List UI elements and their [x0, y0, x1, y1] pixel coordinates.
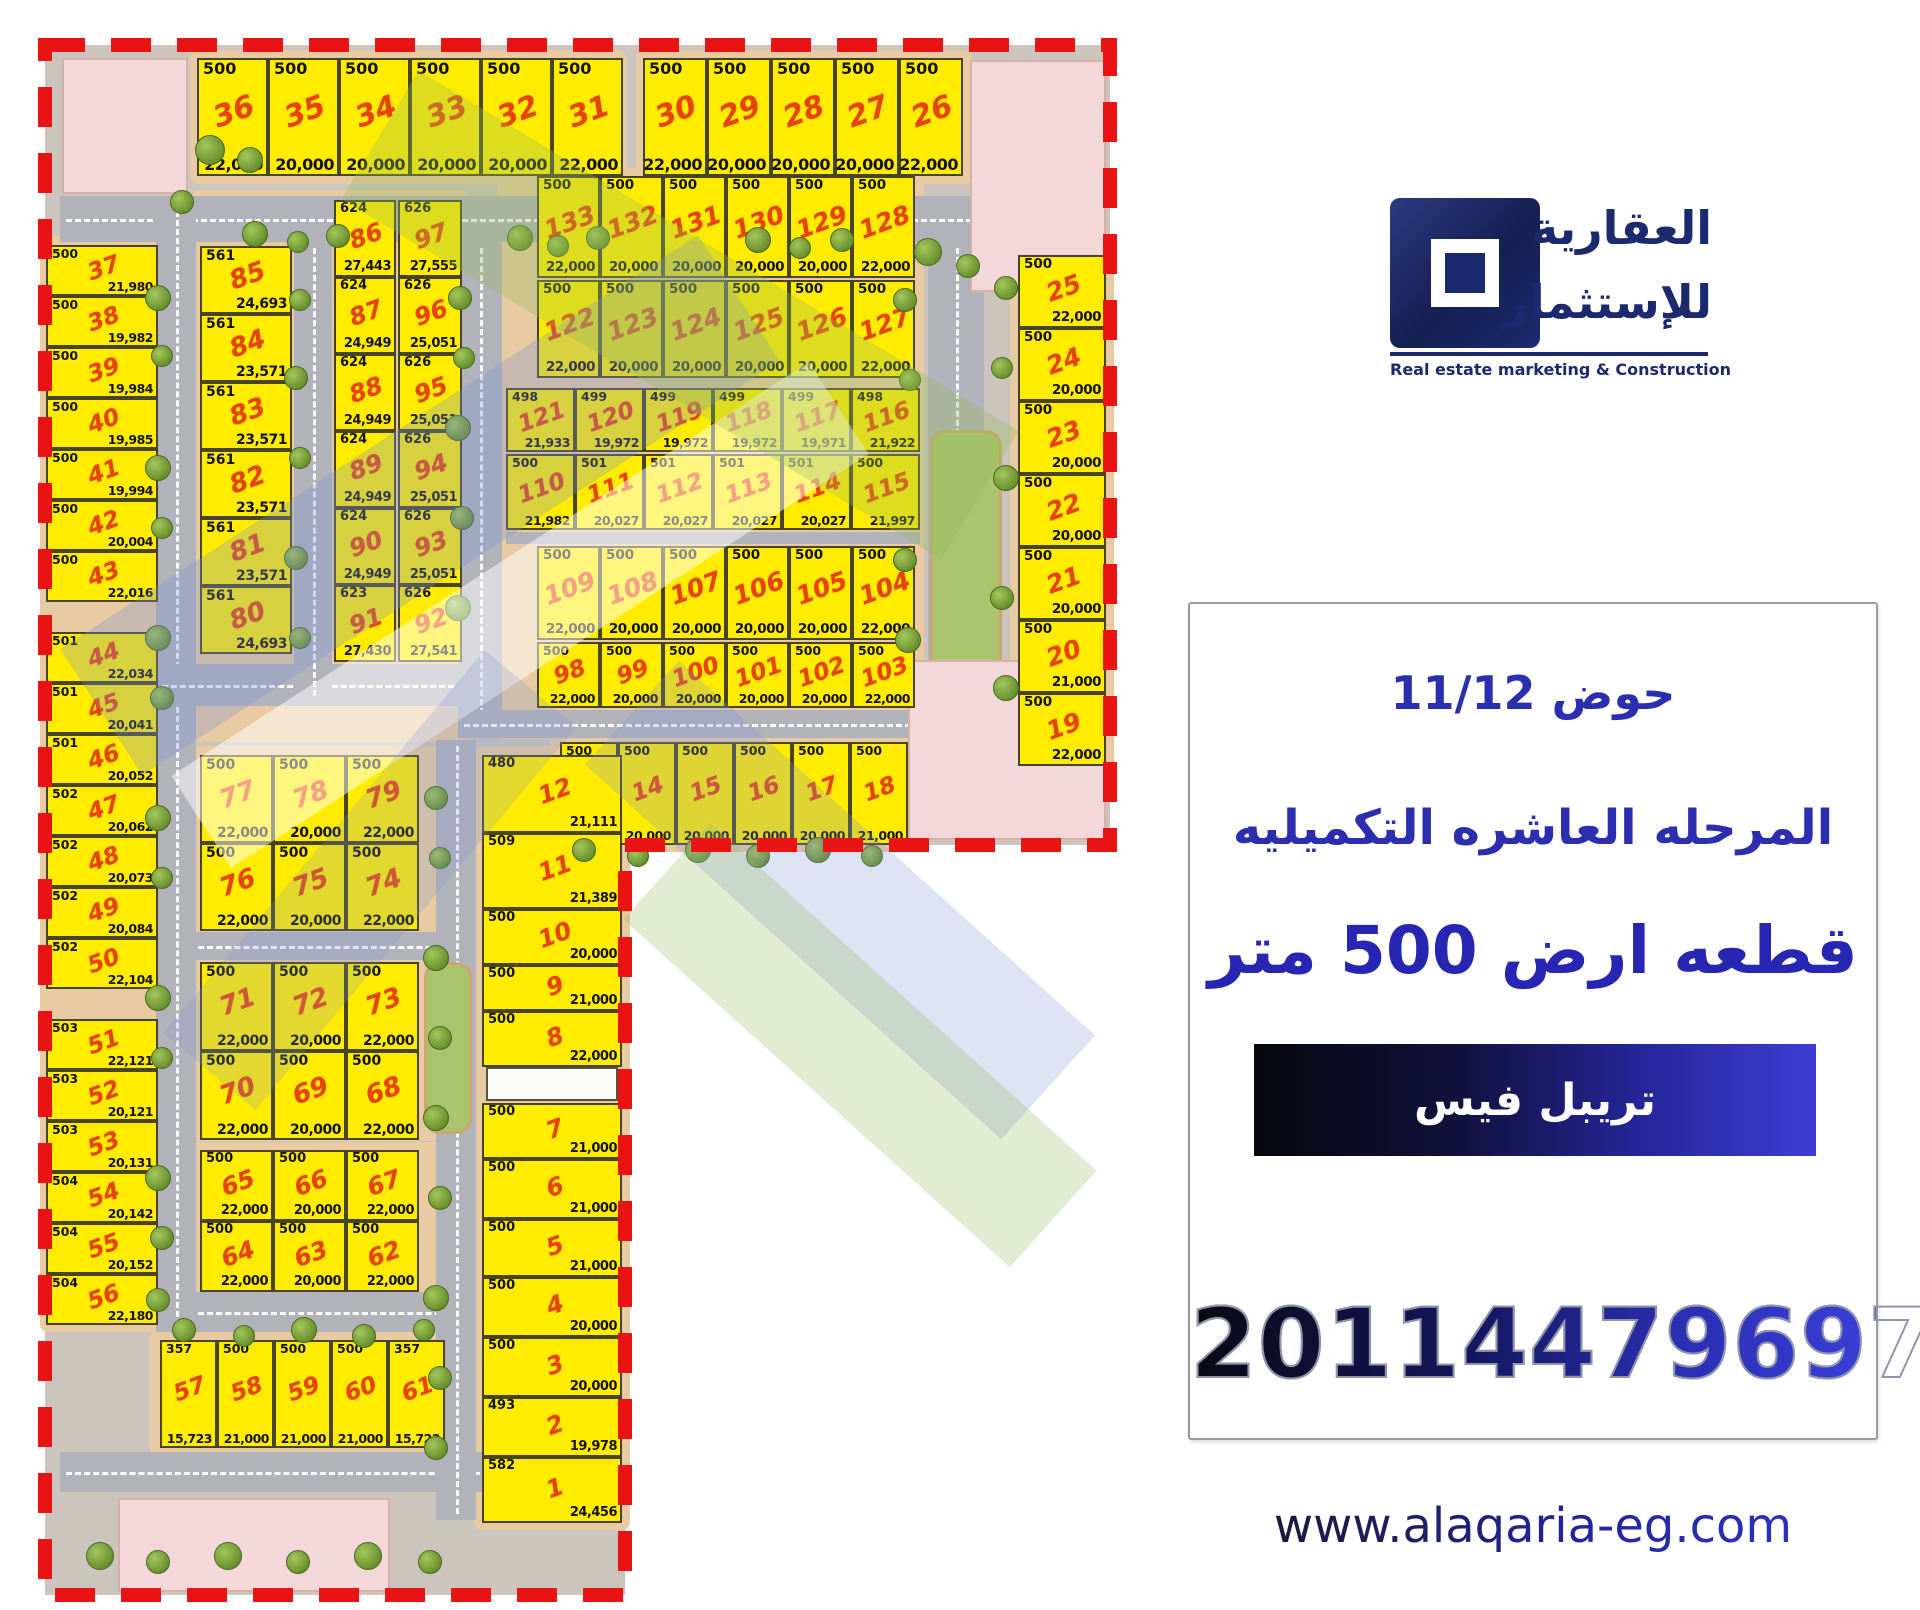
plot-number: 98: [551, 656, 589, 689]
plot-price: 22,000: [550, 692, 595, 706]
offer-subheading: المرحله العاشره التكميليه: [1190, 800, 1876, 856]
plot-number: 58: [227, 1373, 265, 1406]
plot-117: 49911719,971: [782, 388, 851, 452]
plot-area: 500: [795, 178, 823, 194]
plot-area: 500: [606, 282, 634, 298]
plot-number: 94: [411, 450, 451, 484]
plot-63: 5006320,000: [273, 1221, 346, 1292]
plot-43: 5004322,016: [46, 551, 158, 602]
plot-52: 5035220,121: [46, 1070, 158, 1121]
plot-number: 34: [351, 91, 400, 133]
plot-area: 500: [488, 1221, 515, 1236]
plot-number: 101: [732, 653, 785, 691]
watermark-shape: [623, 823, 1096, 1268]
plot-area: 500: [1024, 330, 1052, 346]
plot-number: 86: [346, 219, 386, 253]
plot-price: 24,949: [344, 568, 391, 583]
plot-number: 103: [858, 653, 911, 691]
plot-46: 5014620,052: [46, 734, 158, 785]
vacant-area: [118, 1498, 390, 1592]
tree: [423, 1285, 449, 1311]
tree: [150, 1226, 174, 1250]
tree: [195, 135, 225, 165]
plot-125: 50012520,000: [726, 280, 789, 378]
plot-area: 500: [858, 178, 886, 194]
plot-80: 5618024,693: [200, 586, 292, 654]
plot-price: 20,041: [108, 718, 153, 732]
plot-price: 27,443: [344, 260, 391, 275]
tree: [151, 345, 173, 367]
road: [458, 242, 502, 738]
plot-price: 22,000: [363, 1122, 414, 1138]
plot-number: 71: [217, 985, 260, 1022]
plot-6: 500621,000: [482, 1159, 622, 1219]
plot-90: 6249024,949: [334, 508, 396, 585]
plot-price: 19,982: [108, 331, 153, 345]
plot-23: 5002320,000: [1018, 401, 1106, 474]
plot-area: 500: [52, 502, 78, 516]
plot-51: 5035122,121: [46, 1019, 158, 1070]
plot-47: 5024720,062: [46, 785, 158, 836]
plot-116: 49811621,922: [851, 388, 920, 452]
plot-number: 123: [604, 305, 662, 346]
tree: [627, 845, 649, 867]
plot-area: 500: [206, 964, 235, 980]
tree: [899, 369, 921, 391]
plot-number: 4: [543, 1291, 567, 1319]
plot-price: 22,000: [546, 260, 595, 276]
tree: [237, 147, 263, 173]
plot-41: 5004119,994: [46, 449, 158, 500]
plot-area: 502: [52, 838, 78, 852]
plot-area: 624: [340, 202, 367, 217]
phone-number: 201144796971: [1190, 1288, 1876, 1400]
plot-area: 500: [279, 1053, 308, 1069]
tree: [151, 1047, 173, 1069]
plot-number: 5: [543, 1232, 567, 1260]
tree: [805, 837, 831, 863]
tree: [354, 1542, 382, 1570]
plot-105: 50010520,000: [789, 546, 852, 640]
plot-48: 5024820,073: [46, 836, 158, 887]
tree: [146, 1288, 170, 1312]
tree: [914, 238, 942, 266]
plot-number: 128: [856, 202, 914, 243]
plot-area: 561: [206, 452, 235, 468]
plot-area: 561: [206, 520, 235, 536]
plot-price: 20,000: [609, 622, 658, 638]
tree: [685, 837, 711, 863]
plot-price: 27,555: [410, 260, 457, 275]
tree: [289, 627, 311, 649]
tree: [289, 289, 311, 311]
plot-area: 500: [274, 60, 307, 78]
plot-price: 20,000: [798, 260, 847, 276]
plot-number: 125: [730, 305, 788, 346]
plot-area: 498: [512, 390, 538, 404]
plot-area: 500: [1024, 549, 1052, 565]
plot-number: 3: [543, 1351, 567, 1379]
plot-area: 501: [650, 456, 676, 470]
plot-price: 21,000: [570, 1260, 617, 1275]
plot-number: 82: [226, 463, 269, 500]
plot-area: 502: [52, 889, 78, 903]
plot-area: 500: [1024, 622, 1052, 638]
plot-66: 5006620,000: [273, 1150, 346, 1221]
plot-number: 9: [543, 972, 567, 1000]
plot-area: 500: [606, 548, 634, 564]
tree: [242, 221, 268, 247]
plot-114: 50111420,027: [782, 454, 851, 530]
plot-number: 115: [860, 470, 913, 508]
plot-area: 493: [488, 1399, 515, 1414]
plot-area: 500: [352, 845, 381, 861]
plot-121: 49812121,933: [506, 388, 575, 452]
plot-area: 561: [206, 316, 235, 332]
plot-number: 26: [908, 91, 957, 133]
tree: [991, 357, 1013, 379]
plot-price: 21,000: [570, 1202, 617, 1217]
plot-123: 50012320,000: [600, 280, 663, 378]
plot-number: 14: [629, 773, 667, 806]
plot-number: 6: [543, 1173, 567, 1201]
payment-banner-label: تريبل فيس: [1414, 1075, 1656, 1126]
plot-price: 21,000: [1052, 675, 1101, 691]
plot-area: 501: [788, 456, 814, 470]
plot-area: 500: [795, 644, 821, 658]
plot-number: 112: [653, 470, 706, 508]
plot-area: 500: [1024, 695, 1052, 711]
tree: [146, 1550, 170, 1574]
tree: [423, 1105, 449, 1131]
plot-68: 5006822,000: [346, 1051, 419, 1140]
plot-price: 19,972: [732, 436, 777, 450]
plot-8: 500822,000: [482, 1011, 622, 1067]
plot-14: 5001420,000: [618, 742, 676, 845]
plot-number: 131: [667, 202, 725, 243]
plot-87: 6248724,949: [334, 277, 396, 354]
plot-price: 20,000: [294, 1204, 341, 1219]
plot-number: 100: [669, 653, 722, 691]
tree: [428, 1186, 452, 1210]
plot-area: 480: [488, 757, 515, 772]
plot-number: 90: [346, 527, 386, 561]
plot-price: 20,000: [672, 260, 721, 276]
plot-area: 503: [52, 1021, 78, 1035]
tree: [453, 347, 475, 369]
plot-30: 5003022,000: [643, 58, 707, 176]
plot-16: 5001620,000: [734, 742, 792, 845]
plot-area: 500: [669, 178, 697, 194]
plot-area: 501: [52, 685, 78, 699]
plot-number: 85: [226, 259, 269, 296]
plot-56: 5045622,180: [46, 1274, 158, 1325]
plot-price: 24,949: [344, 491, 391, 506]
plot-area: 561: [206, 248, 235, 264]
plot-57: 3575715,723: [160, 1340, 217, 1448]
plot-number: 111: [584, 470, 637, 508]
plot-85: 5618524,693: [200, 246, 292, 314]
tree: [233, 1325, 255, 1347]
plot-area: 500: [52, 247, 78, 261]
tree: [326, 224, 350, 248]
plot-area: 500: [1024, 257, 1052, 273]
plot-area: 500: [858, 548, 886, 564]
plot-71: 5007122,000: [200, 962, 273, 1051]
plot-area: 501: [581, 456, 607, 470]
plot-price: 19,971: [801, 436, 846, 450]
tree: [428, 1366, 452, 1390]
plot-price: 22,000: [643, 156, 702, 174]
plot-area: 500: [352, 964, 381, 980]
plot-price: 20,000: [798, 622, 847, 638]
plot-102: 50010220,000: [789, 642, 852, 708]
plot-price: 20,004: [108, 535, 153, 549]
plot-89: 6248924,949: [334, 431, 396, 508]
plot-price: 23,571: [236, 432, 287, 448]
plot-price: 21,933: [525, 436, 570, 450]
plot-price: 22,000: [363, 825, 414, 841]
tree: [445, 595, 471, 621]
plot-area: 500: [777, 60, 810, 78]
plot-price: 20,000: [346, 156, 405, 174]
tree: [994, 276, 1018, 300]
plot-price: 22,000: [861, 260, 910, 276]
plot-price: 22,000: [363, 1033, 414, 1049]
plot-price: 20,027: [732, 514, 777, 528]
plot-32: 5003220,000: [481, 58, 552, 176]
road: [458, 710, 926, 738]
plot-price: 23,571: [236, 364, 287, 380]
plot-area: 561: [206, 588, 235, 604]
plot-113: 50111320,027: [713, 454, 782, 530]
plot-61: 3576115,723: [388, 1340, 445, 1448]
plot-area: 503: [52, 1072, 78, 1086]
plot-number: 73: [363, 985, 406, 1022]
plot-number: 75: [290, 865, 333, 902]
tree: [990, 586, 1014, 610]
plot-40: 5004019,985: [46, 398, 158, 449]
plot-area: 357: [166, 1342, 192, 1356]
tree: [861, 845, 883, 867]
plot-124: 50012420,000: [663, 280, 726, 378]
plot-price: 22,000: [546, 622, 595, 638]
plot-price: 20,000: [1052, 456, 1101, 472]
plot-number: 110: [515, 470, 568, 508]
plot-price: 20,000: [739, 692, 784, 706]
plot-area: 500: [488, 1105, 515, 1120]
plot-price: 20,000: [1052, 602, 1101, 618]
plot-area: 499: [719, 390, 745, 404]
plot-number: 79: [363, 777, 406, 814]
payment-banner: تريبل فيس: [1254, 1044, 1816, 1156]
plot-price: 20,000: [835, 156, 894, 174]
plot-area: 500: [856, 744, 882, 758]
plot-area: 500: [488, 1161, 515, 1176]
plot-price: 22,000: [865, 692, 910, 706]
plot-119: 49911919,972: [644, 388, 713, 452]
plot-area: 500: [606, 644, 632, 658]
plot-number: 59: [284, 1373, 322, 1406]
plot-area: 500: [488, 967, 515, 982]
logo-arabic-name: العقارية للإستثمار: [1552, 192, 1712, 339]
plot-55: 5045520,152: [46, 1223, 158, 1274]
plot-price: 22,000: [570, 1050, 617, 1065]
plot-area: 500: [487, 60, 520, 78]
plot-price: 20,000: [672, 360, 721, 376]
tree: [445, 415, 471, 441]
plot-price: 20,000: [570, 948, 617, 963]
plot-number: 16: [745, 773, 783, 806]
plot-price: 22,000: [217, 825, 268, 841]
tree: [145, 625, 171, 651]
plot-number: 35: [280, 91, 329, 133]
tree: [151, 517, 173, 539]
plot-26: 5002622,000: [899, 58, 963, 176]
plot-62: 5006222,000: [346, 1221, 419, 1292]
plot-75: 5007520,000: [273, 843, 346, 931]
plot-price: 21,389: [570, 892, 617, 907]
plot-number: 64: [218, 1237, 258, 1271]
plot-price: 20,121: [108, 1105, 153, 1119]
plot-number: 74: [363, 865, 406, 902]
plot-price: 22,000: [363, 913, 414, 929]
plot-12: 4801221,111: [482, 755, 622, 833]
plot-area: 509: [488, 835, 515, 850]
tree: [746, 844, 770, 868]
plot-15: 5001520,000: [676, 742, 734, 845]
info-panel: العقارية للإستثمار Real estate marketing…: [1130, 0, 1920, 1610]
plot-number: 132: [604, 202, 662, 243]
plot-88: 6248824,949: [334, 354, 396, 431]
plot-area: 500: [488, 1013, 515, 1028]
plot-area: 500: [682, 744, 708, 758]
plot-price: 20,131: [108, 1156, 153, 1170]
plot-area: 500: [52, 349, 78, 363]
tree: [893, 288, 917, 312]
plot-price: 22,034: [108, 667, 153, 681]
plot-area: 500: [1024, 403, 1052, 419]
plot-price: 22,180: [108, 1309, 153, 1323]
plot-area: 500: [732, 644, 758, 658]
plot-number: 99: [614, 656, 652, 689]
plot-number: 124: [667, 305, 725, 346]
plot-price: 19,994: [108, 484, 153, 498]
plot-price: 15,723: [167, 1432, 212, 1446]
plot-122: 50012222,000: [537, 280, 600, 378]
plot-number: 89: [346, 450, 386, 484]
plot-area: 500: [52, 400, 78, 414]
plot-37: 5003721,980: [46, 245, 158, 296]
plot-number: 67: [364, 1166, 404, 1200]
plot-number: 28: [780, 91, 829, 133]
plot-77: 5007722,000: [200, 755, 273, 843]
flyer: 5003622,0005003520,0005003420,0005003320…: [0, 0, 1920, 1610]
plot-number: 106: [730, 569, 788, 610]
plot-29: 5002920,000: [707, 58, 771, 176]
plot-27: 5002720,000: [835, 58, 899, 176]
plot-area: 500: [543, 644, 569, 658]
plot-number: 77: [217, 777, 260, 814]
tree: [145, 985, 171, 1011]
plot-number: 62: [364, 1237, 404, 1271]
plot-price: 19,972: [594, 436, 639, 450]
plot-area: 500: [1024, 476, 1052, 492]
plot-number: 114: [791, 470, 844, 508]
plot-price: 20,000: [742, 829, 787, 843]
tree: [413, 1319, 435, 1341]
plot-area: 500: [858, 282, 886, 298]
plot-number: 78: [290, 777, 333, 814]
plot-area: 500: [624, 744, 650, 758]
plot-area: 500: [52, 298, 78, 312]
plot-39: 5003919,984: [46, 347, 158, 398]
tree: [284, 546, 308, 570]
plot-number: 8: [543, 1023, 567, 1051]
plot-number: 63: [291, 1237, 331, 1271]
plot-number: 66: [291, 1166, 331, 1200]
plot-price: 20,000: [290, 825, 341, 841]
plot-54: 5045420,142: [46, 1172, 158, 1223]
plot-area: 501: [52, 634, 78, 648]
plot-number: 72: [290, 985, 333, 1022]
plot-74: 5007422,000: [346, 843, 419, 931]
plot-price: 22,121: [108, 1054, 153, 1068]
plot-area: 626: [404, 279, 431, 294]
plot-price: 20,000: [1052, 529, 1101, 545]
plot-76: 5007622,000: [200, 843, 273, 931]
offer-card: حوض 11/12 المرحله العاشره التكميليه قطعه…: [1188, 602, 1878, 1440]
plot-area: 500: [543, 178, 571, 194]
plot-area: 500: [352, 1152, 379, 1167]
plot-area: 503: [52, 1123, 78, 1137]
plot-number: 108: [604, 569, 662, 610]
plot-number: 21: [1043, 563, 1084, 598]
plot-number: 12: [535, 774, 575, 808]
plot-60: 5006021,000: [331, 1340, 388, 1448]
tree: [151, 867, 173, 889]
plot-58: 5005821,000: [217, 1340, 274, 1448]
plot-price: 20,000: [570, 1380, 617, 1395]
plot-area: 500: [345, 60, 378, 78]
plot-area: 500: [543, 282, 571, 298]
plot-number: 10: [535, 918, 575, 952]
plot-number: 65: [218, 1166, 258, 1200]
plot-110: 50011021,982: [506, 454, 575, 530]
plot-area: 500: [206, 845, 235, 861]
plot-69: 5006920,000: [273, 1051, 346, 1140]
plot-number: 91: [346, 604, 386, 638]
plot-area: 500: [713, 60, 746, 78]
plot-number: 122: [541, 305, 599, 346]
website-url: www.alaqaria-eg.com: [1188, 1498, 1878, 1554]
plot-number: 32: [493, 91, 542, 133]
plot-price: 22,000: [1052, 748, 1101, 764]
tree: [956, 254, 980, 278]
plot-price: 24,693: [236, 636, 287, 652]
plot-area: 500: [795, 282, 823, 298]
plot-price: 20,027: [663, 514, 708, 528]
plot-price: 21,000: [858, 829, 903, 843]
logo-subtitle: Real estate marketing & Construction: [1390, 360, 1708, 379]
plot-number: 81: [226, 531, 269, 568]
unnumbered-plot: [486, 1067, 618, 1101]
plot-price: 20,000: [672, 622, 721, 638]
plot-area: 504: [52, 1225, 78, 1239]
tree: [424, 786, 448, 810]
plot-price: 25,051: [410, 568, 457, 583]
plot-38: 5003819,982: [46, 296, 158, 347]
